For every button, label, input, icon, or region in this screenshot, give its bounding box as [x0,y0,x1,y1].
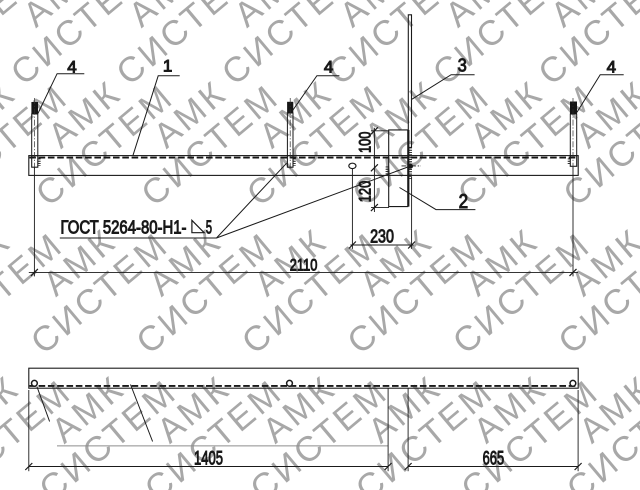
svg-text:2: 2 [459,191,469,213]
svg-text:1405: 1405 [194,448,223,469]
svg-text:230: 230 [370,227,394,247]
svg-text:100: 100 [356,132,375,154]
svg-text:4: 4 [67,58,76,77]
svg-text:120: 120 [356,181,375,203]
svg-text:1: 1 [163,57,172,76]
svg-text:4: 4 [607,58,616,77]
svg-text:4: 4 [324,58,333,77]
svg-text:3: 3 [458,56,467,76]
svg-text:2110: 2110 [290,255,318,274]
svg-text:5: 5 [206,216,212,237]
svg-text:ГОСТ 5264-80-Н1-: ГОСТ 5264-80-Н1- [61,216,187,237]
svg-text:665: 665 [483,448,505,469]
